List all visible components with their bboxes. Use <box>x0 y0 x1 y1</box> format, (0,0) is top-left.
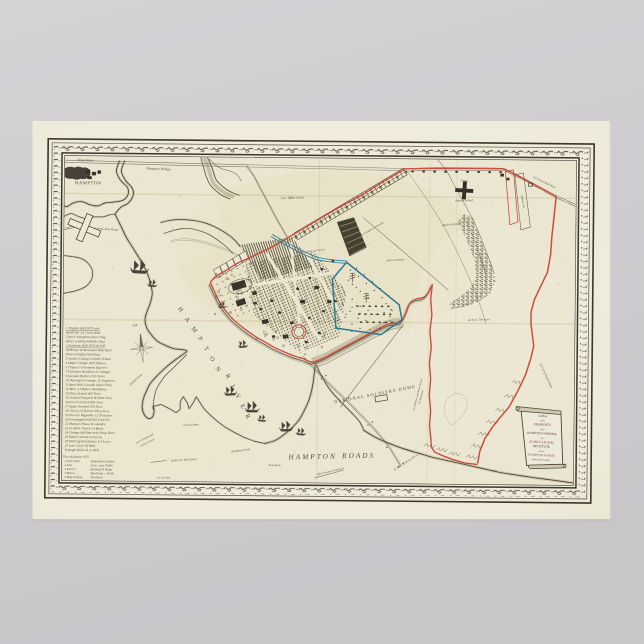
svg-text:INSTITUTE: INSTITUTE <box>533 444 550 449</box>
svg-text:Triangle fields 24 av Well: Triangle fields 24 av Well <box>65 448 99 452</box>
svg-text:Mill: Mill <box>131 324 137 327</box>
svg-text:Town of: Town of <box>85 173 95 176</box>
svg-text:HAMPTON: HAMPTON <box>287 452 336 462</box>
svg-text:Ld lot 6. 300 Acres: Ld lot 6. 300 Acres <box>467 317 491 322</box>
svg-text:Col. the Week: Col. the Week <box>157 476 172 479</box>
svg-text:ROADS: ROADS <box>341 451 375 461</box>
svg-text:Yorke Rock: Yorke Rock <box>269 464 282 467</box>
svg-text:King Street: King Street <box>77 158 94 162</box>
svg-text:Graves: Graves <box>461 179 469 182</box>
svg-text:HAMPTON: HAMPTON <box>75 180 102 185</box>
svg-text:Cows Farm: Cows Farm <box>183 422 199 427</box>
svg-text:A Plan: A Plan <box>538 414 547 418</box>
svg-text:PROPERTY: PROPERTY <box>534 422 552 427</box>
svg-text:Col. Tabbs Farm: Col. Tabbs Farm <box>281 195 305 200</box>
svg-text:Butlers School: Butlers School <box>455 198 473 202</box>
